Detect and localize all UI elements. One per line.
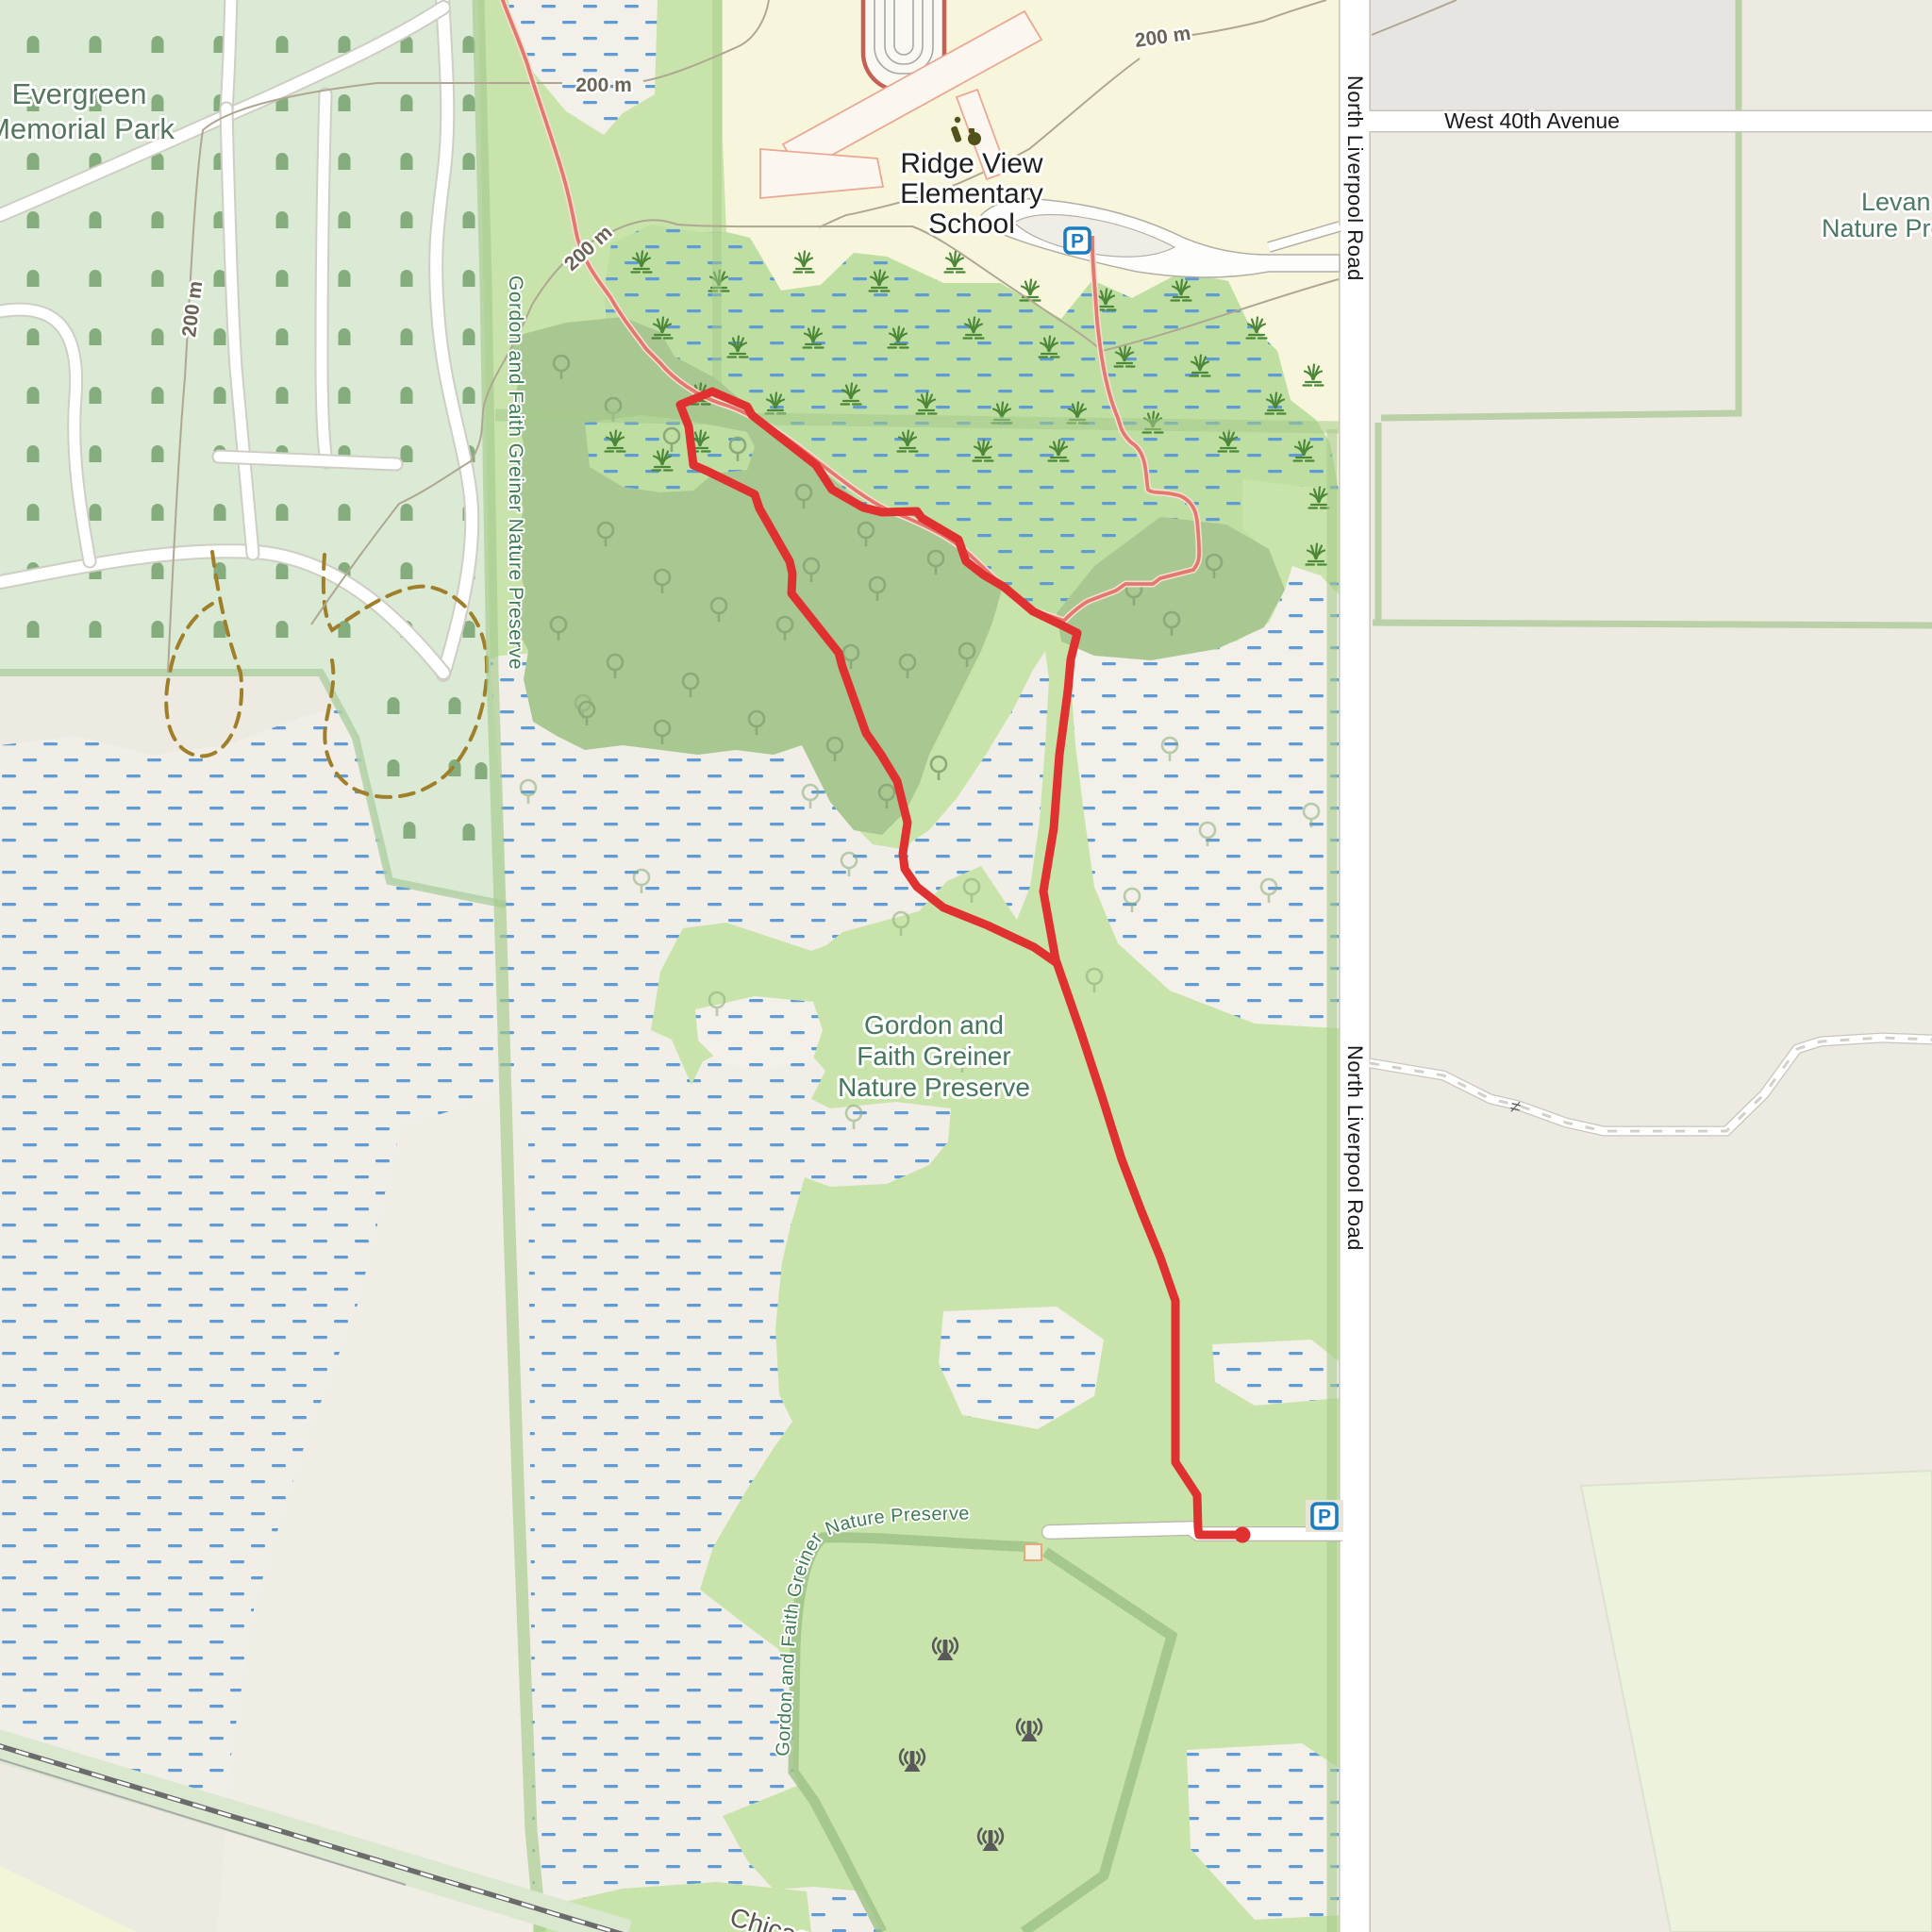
svg-text:Levan Woud: Levan Woud: [1861, 188, 1932, 216]
svg-text:West 40th Avenue: West 40th Avenue: [1444, 108, 1620, 133]
svg-text:Elementary: Elementary: [900, 178, 1043, 209]
svg-text:School: School: [928, 208, 1015, 240]
svg-text:Ridge View: Ridge View: [900, 148, 1043, 179]
svg-text:Gordon and: Gordon and: [864, 1010, 1004, 1040]
svg-text:Faith Greiner: Faith Greiner: [857, 1041, 1010, 1071]
svg-text:Nature Pres: Nature Pres: [1822, 214, 1932, 242]
svg-text:Memorial Park: Memorial Park: [0, 112, 175, 145]
svg-text:Evergreen: Evergreen: [11, 77, 146, 110]
svg-text:200 m: 200 m: [575, 75, 632, 96]
svg-text:North Liverpool Road: North Liverpool Road: [1343, 1045, 1367, 1251]
svg-text:Gordon and Faith Greiner Natur: Gordon and Faith Greiner Nature Preserve: [505, 275, 526, 670]
svg-text:North Liverpool Road: North Liverpool Road: [1343, 75, 1367, 281]
svg-text:Nature Preserve: Nature Preserve: [838, 1073, 1030, 1102]
